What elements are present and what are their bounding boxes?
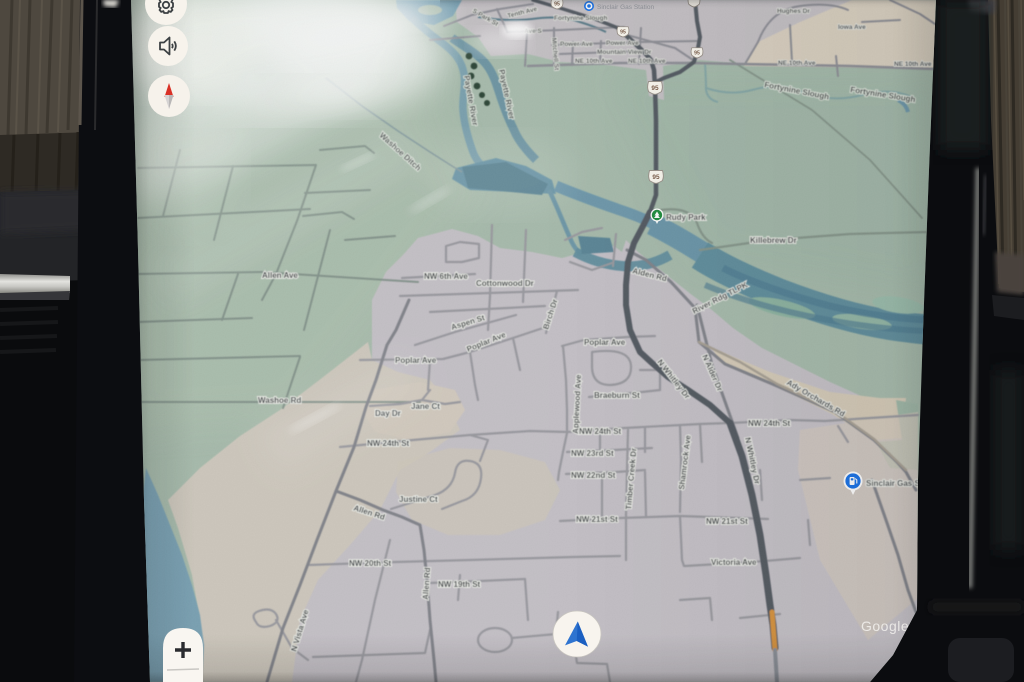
svg-text:Google: Google [861, 618, 909, 634]
